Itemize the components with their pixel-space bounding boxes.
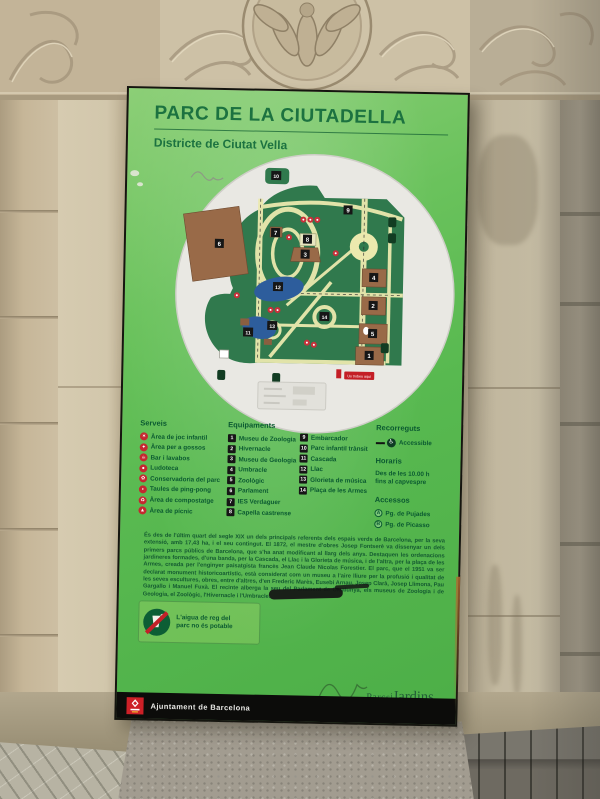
no-drinking-water-icon (143, 608, 171, 636)
access-a-icon: A (374, 509, 382, 517)
legend-item: 14Plaça de les Armes (299, 487, 375, 497)
marker-number: 3 (227, 455, 235, 463)
marker-number: 6 (227, 487, 235, 495)
water-notice-box: L'aigua de reg del parc no és potable (138, 600, 261, 644)
marker-number: 7 (227, 498, 235, 506)
legend-item: 12Llac (299, 465, 375, 475)
sign-legend: Serveis ✶Àrea de joc infantil ✦Àrea per … (138, 418, 456, 532)
toy-library-icon: ● (139, 464, 147, 472)
legend-item: 1Museu de Zoologia (228, 434, 300, 443)
route-line-icon (376, 442, 385, 444)
map-marker-4: 4 (369, 273, 378, 282)
playground-icon: ✶ (140, 432, 148, 440)
map-marker-1: 1 (365, 351, 374, 360)
compost-icon: ♻ (139, 496, 147, 504)
legend-item: ☕Bar i lavabos (139, 454, 227, 464)
legend-item: ●Ludoteca (139, 464, 227, 474)
map-marker-8: 8 (303, 235, 312, 244)
legend-item: 3Museu de Geologia (227, 455, 299, 464)
legend-column-serveis: Serveis ✶Àrea de joc infantil ✦Àrea per … (138, 418, 228, 518)
map-inner-legend (258, 382, 327, 410)
legend-item: 8Capella castrense (226, 508, 298, 517)
stone-column-right (560, 92, 600, 760)
legend-column-equipaments: Equipaments 1Museu de Zoologia 2Hivernac… (226, 420, 300, 520)
legend-item: 2Hivernacle (228, 445, 300, 454)
park-map: 10 9 4 2 5 1 6 7 8 3 12 11 13 14 (172, 151, 458, 437)
marker-number: 4 (227, 466, 235, 474)
legend-item: 11Cascada (299, 455, 375, 465)
svg-text:13: 13 (269, 324, 275, 330)
stone-column-left (0, 92, 58, 760)
map-marker-7: 7 (271, 228, 280, 237)
access-row: B Pg. de Picasso (374, 520, 454, 530)
svg-text:10: 10 (273, 174, 279, 180)
map-marker-10: 10 (271, 171, 281, 180)
svg-text:11: 11 (245, 330, 251, 336)
access-b-icon: B (374, 520, 382, 528)
sign-edge-glint (454, 577, 461, 707)
wheelchair-icon: ♿ (387, 438, 396, 447)
map-marker-3: 3 (301, 250, 310, 259)
horaris-header: Horaris (375, 456, 455, 467)
marker-number: 10 (300, 444, 308, 452)
map-marker-12: 12 (273, 282, 283, 291)
district-subtitle: Districte de Ciutat Vella (154, 136, 288, 153)
opening-hours: fins al capvespre (375, 478, 455, 488)
legend-item: ♻Àrea de compostatge (139, 496, 227, 506)
legend-item: 9Embarcador (300, 434, 376, 444)
svg-text:14: 14 (322, 315, 328, 321)
legend-column-equipaments-2: 9Embarcador 10Parc infantil trànsit 11Ca… (299, 422, 377, 499)
graffiti-scribble (191, 172, 223, 181)
graffiti-marker-blot (269, 588, 343, 600)
paving-bricks (452, 726, 600, 799)
ping-pong-icon: ◗ (139, 485, 147, 493)
park-information-sign: PARC DE LA CIUTADELLA Districte de Ciuta… (114, 86, 470, 727)
map-marker-6: 6 (215, 239, 224, 248)
marker-number: 13 (299, 476, 307, 484)
accessos-header: Accessos (375, 495, 455, 506)
marker-number: 1 (228, 434, 236, 442)
marker-number: 8 (226, 508, 234, 516)
legend-item: 4Umbracle (227, 466, 299, 475)
marker-number: 5 (227, 476, 235, 484)
ajuntament-barcelona-logo (126, 697, 143, 714)
photo-of-park-sign: PARC DE LA CIUTADELLA Districte de Ciuta… (0, 0, 600, 799)
stone-frieze-carving (0, 0, 600, 100)
dog-area-icon: ✦ (140, 443, 148, 451)
bar-toilets-icon: ☕ (139, 454, 147, 462)
legend-item: ▲Àrea de pícnic (138, 506, 226, 516)
map-marker-5: 5 (368, 329, 377, 338)
marker-number: 11 (299, 455, 307, 463)
marker-number: 9 (300, 434, 308, 442)
map-marker-2: 2 (369, 301, 378, 310)
stone-pilaster-right (468, 95, 562, 745)
marker-number: 14 (299, 487, 307, 495)
map-marker-9: 9 (343, 205, 352, 214)
page-title: PARC DE LA CIUTADELLA (154, 103, 406, 130)
legend-item: ◗Taules de ping-pong (139, 485, 227, 495)
legend-item: 6Parlament (227, 487, 299, 496)
recorreguts-header: Recorreguts (376, 423, 456, 434)
legend-item: ✦Àrea per a gossos (140, 443, 228, 453)
access-row: A Pg. de Pujades (374, 509, 454, 519)
legend-item: 5Zoològic (227, 476, 299, 485)
legend-column-info: Recorreguts ♿ Accessible Horaris Des de … (374, 423, 456, 530)
equipaments-header: Equipaments (228, 420, 300, 430)
legend-item: ✿Conservadoria del parc (139, 475, 227, 485)
legend-item: 13Glorieta de música (299, 476, 375, 486)
map-marker-11: 11 (243, 327, 253, 336)
legend-item: ✶Àrea de joc infantil (140, 432, 228, 442)
svg-text:12: 12 (275, 285, 281, 291)
accessible-route-row: ♿ Accessible (376, 438, 456, 449)
park-conservancy-icon: ✿ (139, 475, 147, 483)
sign-footer-strip: Ajuntament de Barcelona (116, 692, 455, 725)
legend-item: 7IES Verdaguer (227, 498, 299, 507)
legend-item: 10Parc infantil trànsit (300, 444, 376, 454)
map-marker-14: 14 (319, 312, 329, 321)
water-notice-text: L'aigua de reg del parc no és potable (176, 614, 238, 631)
municipality-label: Ajuntament de Barcelona (150, 701, 250, 712)
marker-number: 12 (299, 465, 307, 473)
marker-number: 2 (228, 445, 236, 453)
svg-text:Us trobeu aquí: Us trobeu aquí (347, 374, 371, 378)
picnic-icon: ▲ (138, 506, 146, 514)
serveis-header: Serveis (140, 418, 228, 429)
map-marker-13: 13 (267, 321, 277, 330)
